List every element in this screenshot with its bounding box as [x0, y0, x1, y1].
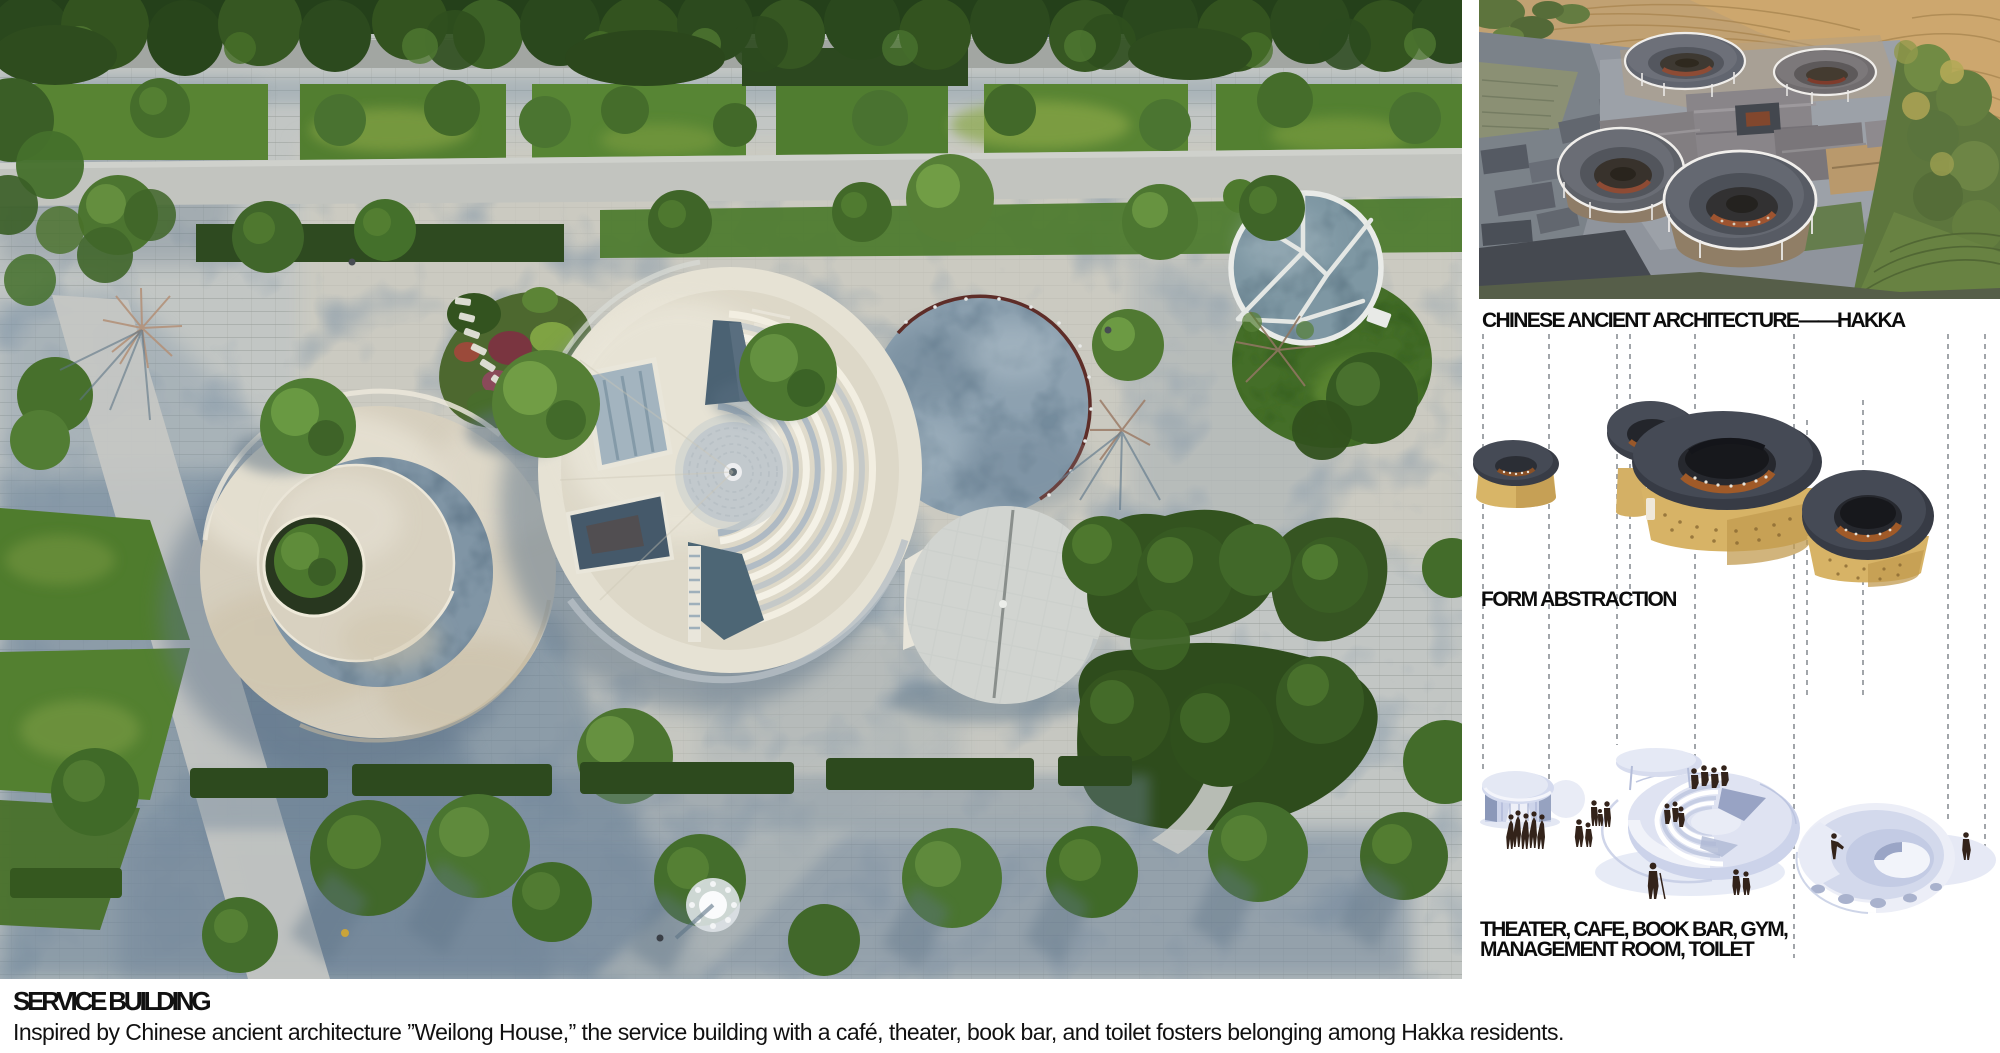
svg-text:Inspired by Chinese ancient ar: Inspired by Chinese ancient architecture…	[13, 1019, 1564, 1045]
svg-text:MANAGEMENT ROOM, TOILET: MANAGEMENT ROOM, TOILET	[1480, 938, 1755, 961]
svg-text:SERVICE BUILDING: SERVICE BUILDING	[13, 986, 210, 1016]
svg-text:CHINESE ANCIENT ARCHITECTURE——: CHINESE ANCIENT ARCHITECTURE——HAKKA	[1482, 309, 1906, 332]
svg-text:FORM ABSTRACTION: FORM ABSTRACTION	[1481, 588, 1676, 611]
